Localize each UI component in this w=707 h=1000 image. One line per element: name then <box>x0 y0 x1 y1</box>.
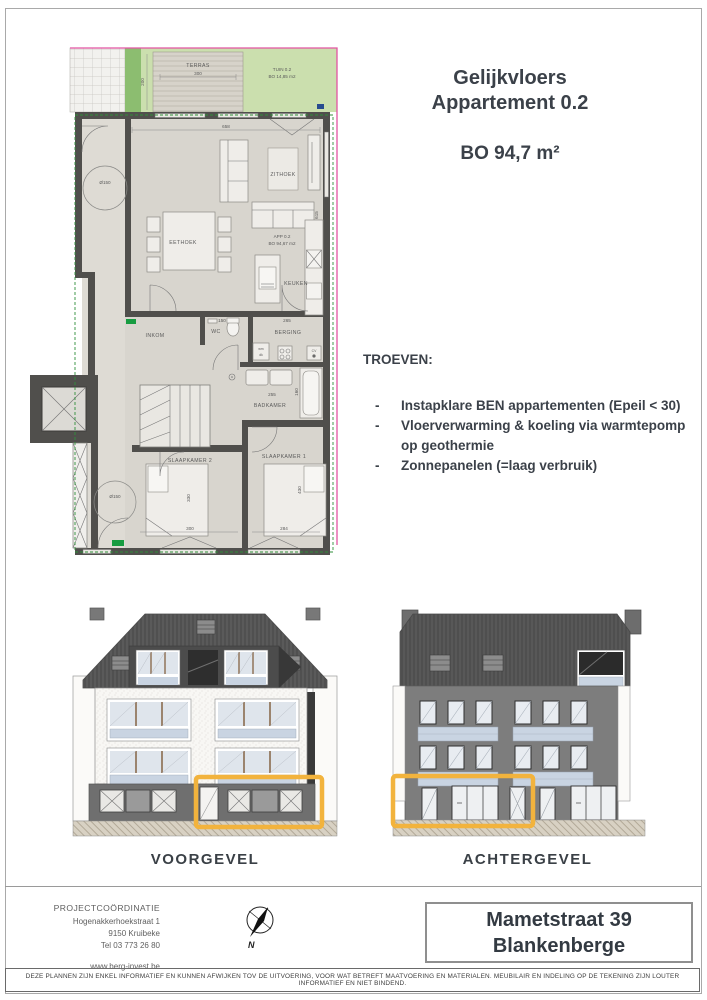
troeven-item: - Vloerverwarming & koeling via warmtepo… <box>363 416 698 456</box>
washer-dryer <box>253 343 269 360</box>
terrace-deck <box>153 52 243 112</box>
chair <box>147 217 160 232</box>
sofa <box>220 140 248 202</box>
chair <box>218 237 231 252</box>
coordination-title: PROJECTCOÖRDINATIE <box>28 903 160 913</box>
tuin-label: TUIN 0.2 <box>273 67 292 72</box>
dormer <box>129 646 301 688</box>
troeven-item-text: Zonnepanelen (=laag verbruik) <box>401 456 698 476</box>
utility-marker <box>317 104 324 109</box>
troeven-item: - Instapklare BEN appartementen (Epeil <… <box>363 396 698 416</box>
front-elevation <box>60 598 350 848</box>
neighbour-terrace-tiles <box>70 48 125 112</box>
chair <box>218 257 231 272</box>
berging-label: BERGING <box>275 330 302 336</box>
dim-sk2-depth: 330 <box>186 494 191 502</box>
chair <box>218 217 231 232</box>
sink <box>270 370 292 385</box>
dim-sk1-width: 284 <box>280 526 288 531</box>
chimney <box>90 608 104 620</box>
app-area-label: BO 94,67 m2 <box>268 241 296 246</box>
side-wing-right <box>313 676 337 821</box>
rear-elevation <box>385 598 670 848</box>
zithoek-label: ZITHOEK <box>270 172 295 178</box>
coordination-street: Hogenakkerhoekstraat 1 <box>28 916 160 928</box>
badkamer-label: BADKAMER <box>254 403 286 409</box>
area-title: BO 94,7 m² <box>385 143 635 165</box>
bullet-dash: - <box>363 416 401 456</box>
tuin-area-label: BO 14,85 m2 <box>268 74 296 79</box>
apartment-title: Appartement 0.2 <box>385 91 635 116</box>
project-street: Mametstraat 39 <box>486 907 632 933</box>
ground-floor <box>89 784 315 822</box>
title-block: Gelijkvloers Appartement 0.2 BO 94,7 m² <box>385 66 635 165</box>
dim-terras-depth: 200 <box>140 78 145 86</box>
chimney <box>306 608 320 620</box>
dim-sk1-depth: 430 <box>297 486 302 494</box>
slaapkamer1-label: SLAAPKAMER 1 <box>262 454 306 460</box>
elevator <box>30 375 98 443</box>
dim-badkamer-2: 160 <box>294 388 299 396</box>
turning-circle-label-2: Ø150 <box>109 494 121 499</box>
terras-label: TERRAS <box>186 63 210 69</box>
footer-divider <box>5 886 701 887</box>
project-city: Blankenberge <box>493 933 625 959</box>
troeven-section: TROEVEN: - Instapklare BEN appartementen… <box>363 352 698 476</box>
compass-icon: N <box>238 900 282 956</box>
floor-title: Gelijkvloers <box>385 66 635 91</box>
inkom-label: INKOM <box>145 333 164 339</box>
turning-circle-label: Ø150 <box>99 180 111 185</box>
troeven-item-text: Vloerverwarming & koeling via warmtepomp… <box>401 416 698 456</box>
roof-balcony <box>577 650 625 688</box>
exit-sign-icon <box>126 319 136 324</box>
coordination-phone: Tel 03 773 26 80 <box>28 940 160 952</box>
project-address-box: Mametstraat 39 Blankenberge <box>425 902 693 963</box>
dim-living-width: 658 <box>222 124 230 129</box>
dim-badkamer: 255 <box>268 392 276 397</box>
bullet-dash: - <box>363 456 401 476</box>
dim-living-depth: 615 <box>314 211 319 219</box>
troeven-item-text: Instapklare BEN appartementen (Epeil < 3… <box>401 396 698 416</box>
dim-wc: 150 <box>218 318 226 323</box>
chair <box>147 257 160 272</box>
slaapkamer2-label: SLAAPKAMER 2 <box>168 458 212 464</box>
disclaimer-bar: DEZE PLANNEN ZIJN ENKEL INFORMATIEF EN K… <box>5 968 700 992</box>
front-elevation-label: VOORGEVEL <box>60 851 350 868</box>
coordination-city: 9150 Kruibeke <box>28 928 160 940</box>
sink <box>246 370 268 385</box>
troeven-item: - Zonnepanelen (=laag verbruik) <box>363 456 698 476</box>
app-label: APP 0.2 <box>274 234 291 239</box>
washer-label: wm <box>258 347 263 351</box>
north-label: N <box>248 940 255 950</box>
floor-plan: TERRAS 300 200 TUIN 0.2 BO 14,85 m2 <box>20 40 350 570</box>
green-strip <box>125 48 141 112</box>
exit-sign-icon <box>112 540 124 546</box>
dryer-label: dk <box>259 353 263 357</box>
sideboard <box>308 135 320 190</box>
cv-label: CV <box>312 349 317 353</box>
dim-terras-width: 300 <box>194 71 202 76</box>
keuken-label: KEUKEN <box>284 281 308 287</box>
chair <box>147 237 160 252</box>
dim-sk2-width: 300 <box>186 526 194 531</box>
wc-label: WC <box>211 329 220 335</box>
side-wing-right <box>618 686 630 801</box>
dim-berging: 265 <box>283 318 291 323</box>
rear-elevation-label: ACHTERGEVEL <box>385 851 670 868</box>
bullet-dash: - <box>363 396 401 416</box>
eethoek-label: EETHOEK <box>169 240 197 246</box>
rug <box>268 148 298 190</box>
contact-block: PROJECTCOÖRDINATIE Hogenakkerhoekstraat … <box>28 903 160 973</box>
troeven-heading: TROEVEN: <box>363 352 698 367</box>
